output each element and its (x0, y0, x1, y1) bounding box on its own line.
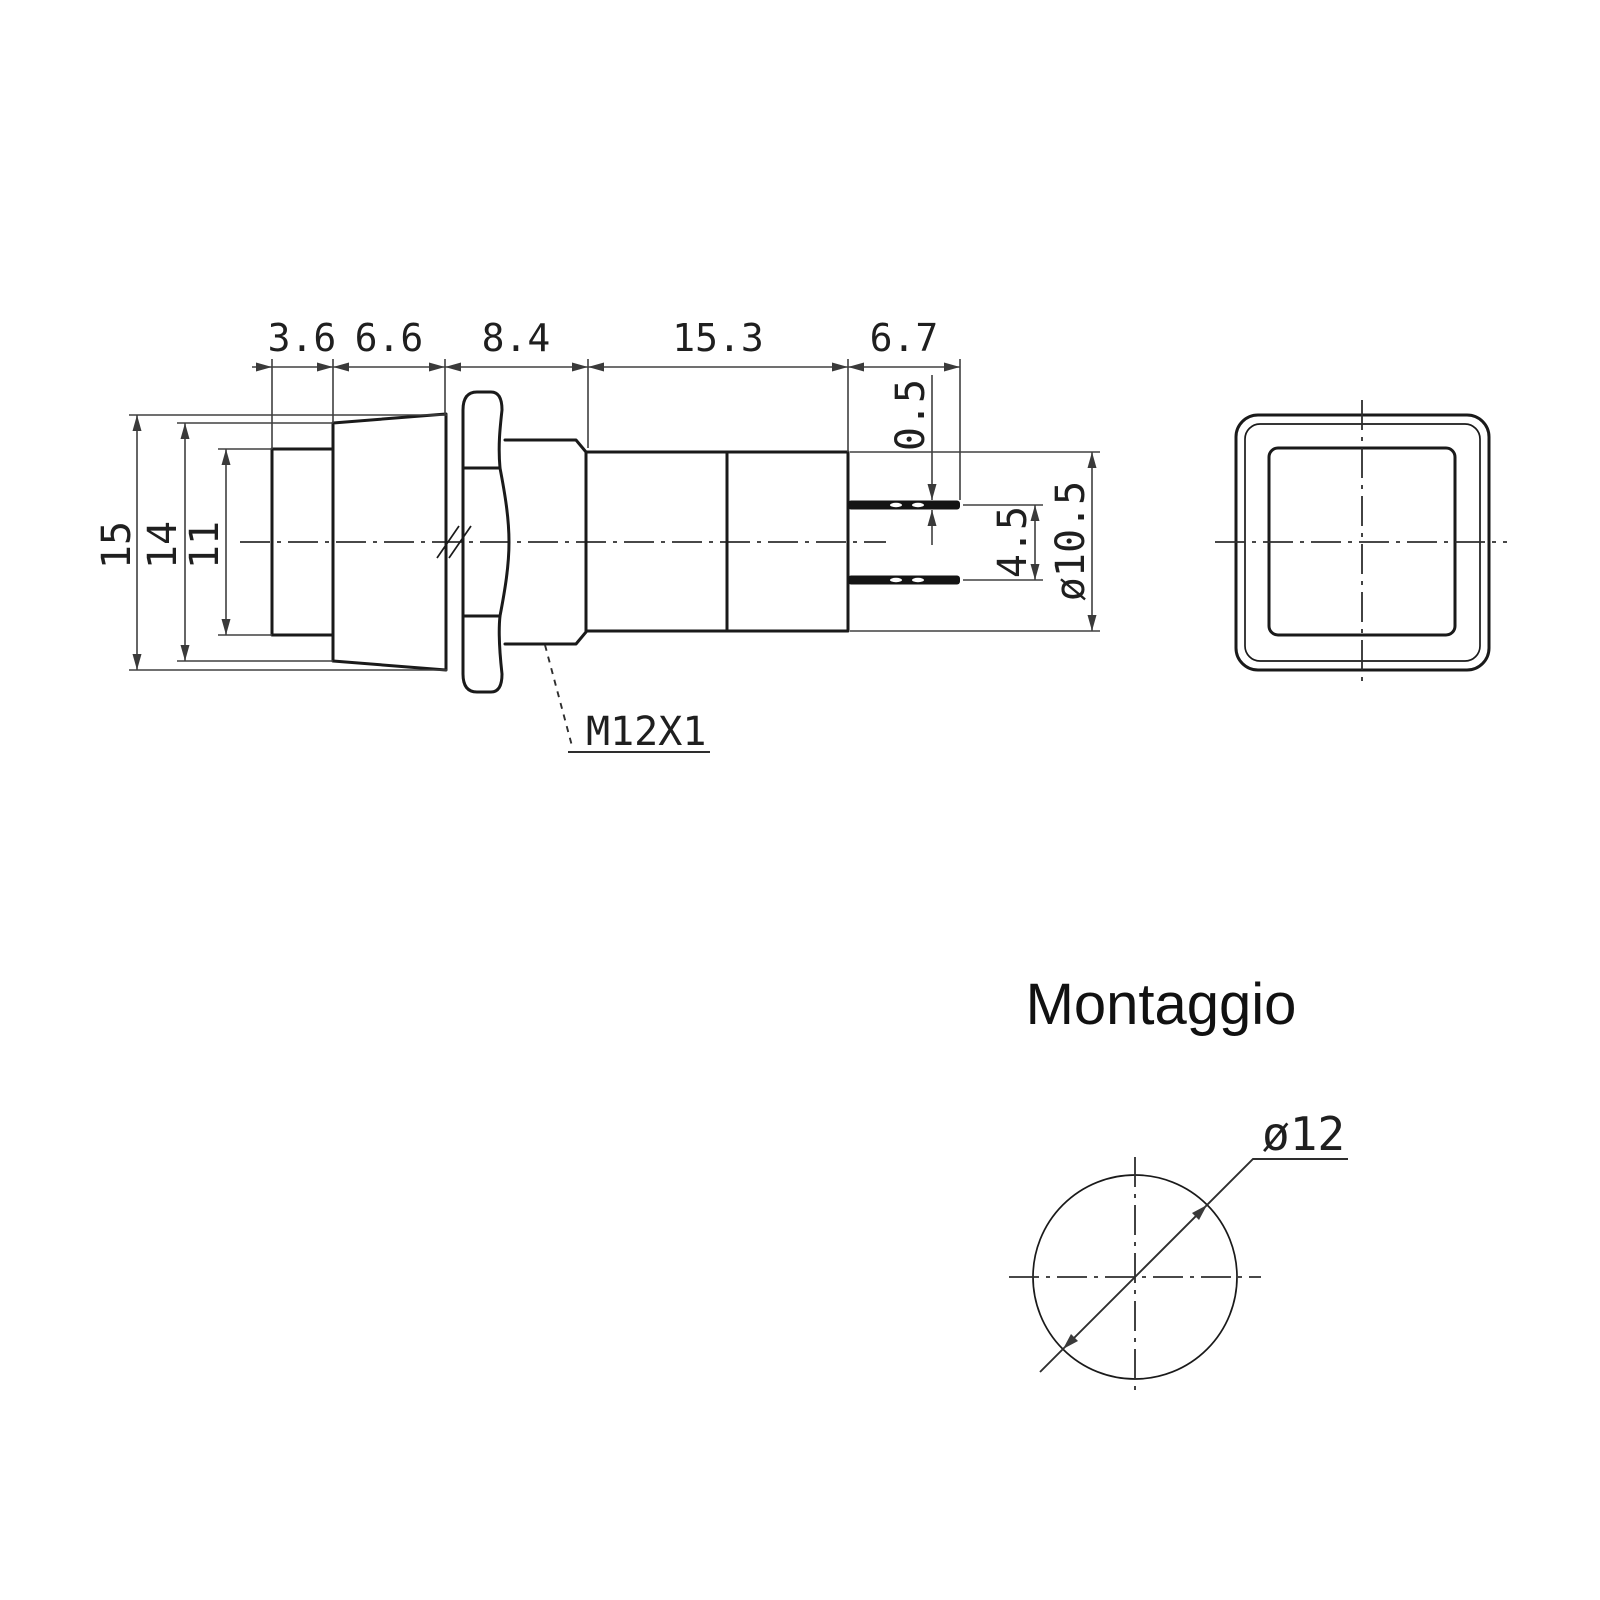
pin-hole (890, 503, 902, 507)
dim-label-6-7: 6.7 (870, 316, 939, 360)
pin-hole (912, 503, 924, 507)
dim-label-6-6: 6.6 (355, 316, 424, 360)
dim-label-15-3: 15.3 (672, 316, 764, 360)
dim-label-4-5: 4.5 (990, 506, 1036, 578)
thread-label: M12X1 (586, 709, 706, 755)
technical-drawing-page: 3.6 6.6 8.4 15.3 6.7 15 14 11 0.5 (0, 0, 1600, 1600)
dim-label-14: 14 (140, 521, 186, 569)
dim-label-0-5: 0.5 (888, 379, 934, 451)
mounting-view: Montaggio ø12 (1009, 972, 1348, 1397)
thread-leader-line (545, 645, 572, 746)
front-view-centerlines (1215, 400, 1507, 688)
side-view-dimensions: 3.6 6.6 8.4 15.3 6.7 15 14 11 0.5 (94, 316, 1100, 755)
mounting-title: Montaggio (1026, 972, 1297, 1037)
side-view: 3.6 6.6 8.4 15.3 6.7 15 14 11 0.5 (94, 316, 1100, 755)
dim-label-diameter-10-5: ø10.5 (1048, 481, 1094, 601)
terminal-pin-top (848, 501, 960, 510)
mounting-diameter-label: ø12 (1262, 1107, 1345, 1161)
pin-hole (912, 578, 924, 582)
dim-label-8-4: 8.4 (482, 316, 551, 360)
dim-label-11: 11 (182, 521, 228, 569)
dim-label-3-6: 3.6 (268, 316, 337, 360)
mounting-diameter-leader (1040, 1159, 1348, 1372)
pushbutton-switch-drawing: 3.6 6.6 8.4 15.3 6.7 15 14 11 0.5 (0, 0, 1600, 1600)
dim-label-15: 15 (94, 521, 140, 569)
top-extension-lines (272, 359, 960, 500)
front-view (1215, 400, 1507, 688)
pin-hole (890, 578, 902, 582)
terminal-pin-bottom (848, 576, 960, 585)
